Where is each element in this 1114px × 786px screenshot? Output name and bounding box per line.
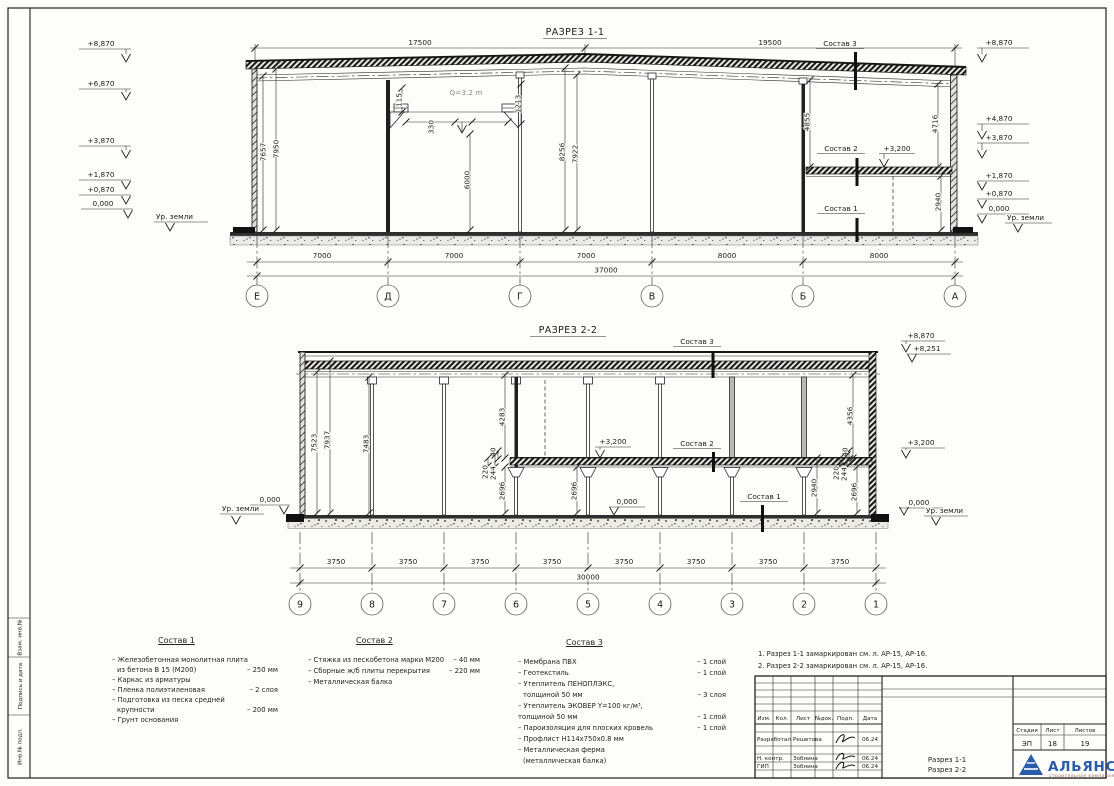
svg-text:330: 330 (427, 120, 436, 134)
svg-text:7000: 7000 (577, 251, 596, 260)
section-2-2-right-elevations: +8,870 +8,251 +3,200 0,000 Ур. земли (899, 331, 968, 525)
svg-text:3750: 3750 (831, 557, 850, 566)
svg-text:5: 5 (585, 600, 591, 611)
svg-text:Ур. земли: Ур. земли (156, 212, 193, 221)
legend-sostav-1: Состав 1 – Железобетонная монолитная пли… (112, 636, 278, 725)
svg-text:+3,870: +3,870 (87, 136, 114, 145)
legend-row: (металлическая балка) (518, 756, 726, 767)
stage-header: Стадия (1016, 728, 1037, 734)
svg-text:3750: 3750 (543, 557, 562, 566)
svg-text:7937: 7937 (323, 430, 332, 449)
legend-row: – Железобетонная монолитная плита (112, 655, 278, 665)
note-line: 2. Разрез 2-2 замаркирован см. л. АР-15,… (758, 661, 927, 673)
tb-name: Решетова (793, 737, 822, 743)
legend-row: – Металлическая балка (308, 677, 480, 688)
svg-text:+1,870: +1,870 (985, 171, 1012, 180)
tb-header: Кол. (776, 716, 789, 722)
doc-title-line2: Разрез 2-2 (928, 766, 966, 774)
legend-row: – Пленка полиэтиленовая– 2 слоя (112, 685, 278, 695)
svg-text:0,000: 0,000 (989, 204, 1010, 213)
svg-text:7523: 7523 (310, 433, 319, 452)
note-line: 1. Разрез 1-1 замаркирован см. л. АР-15,… (758, 649, 927, 661)
callout-sostav2: Состав 2 (680, 439, 714, 448)
side-strip-label: Взам. инв.№ (18, 619, 24, 655)
svg-text:37000: 37000 (594, 266, 618, 275)
svg-text:3: 3 (729, 600, 735, 611)
svg-text:Б: Б (800, 292, 807, 303)
section-1-1-left-elevations: +8,870 +6,870 +3,870 +1,870 +0,870 0,000… (79, 39, 208, 231)
svg-text:Ур. земли: Ур. земли (222, 504, 259, 513)
tb-role: ГИП (757, 764, 769, 770)
side-strip-label: Инв.№ подл. (18, 728, 24, 765)
svg-text:9: 9 (297, 600, 303, 611)
svg-text:4: 4 (657, 600, 663, 611)
svg-text:3750: 3750 (615, 557, 634, 566)
legend-title: Состав 1 (158, 636, 195, 646)
callout-sostav1: Состав 1 (747, 492, 781, 501)
legend-sostav-2: Состав 2 – Стяжка из пескобетона марки М… (308, 636, 480, 688)
notes: 1. Разрез 1-1 замаркирован см. л. АР-15,… (758, 649, 927, 672)
svg-text:+6,870: +6,870 (87, 79, 114, 88)
legend-row: толщиной 50 мм– 1 слой (518, 712, 726, 723)
sheet-number: 18 (1048, 740, 1057, 748)
legend-row: – Сборные ж/б плиты перекрытия– 220 мм (308, 666, 480, 677)
legend-row: – Мембрана ПВХ– 1 слой (518, 657, 726, 668)
legend-row: крупности– 200 мм (112, 705, 278, 715)
tb-date: 06.24 (862, 737, 878, 743)
tb-header: Дата (863, 716, 877, 722)
svg-text:244: 244 (840, 467, 849, 481)
svg-text:7000: 7000 (313, 251, 332, 260)
tb-name: Зобнина (793, 756, 818, 762)
svg-text:+8,870: +8,870 (985, 38, 1012, 47)
svg-text:4356: 4356 (846, 406, 855, 425)
section-1-1-bottom-dims: 7000 7000 7000 8000 8000 37000 Е Д Г В Б… (246, 236, 966, 307)
stage-value: ЭП (1022, 740, 1032, 748)
svg-text:3750: 3750 (687, 557, 706, 566)
legend-row: – Утеплитель ЭКОВЕР Y=100 кг/м³, (518, 701, 726, 712)
svg-text:2940: 2940 (810, 478, 819, 497)
svg-text:7000: 7000 (445, 251, 464, 260)
svg-text:30000: 30000 (576, 573, 600, 582)
svg-text:7922: 7922 (571, 145, 580, 164)
elevation-0-mid: 0,000 (617, 497, 638, 506)
svg-text:+0,870: +0,870 (985, 189, 1012, 198)
svg-text:4283: 4283 (498, 407, 507, 426)
svg-text:Г: Г (517, 292, 523, 303)
svg-text:6: 6 (513, 600, 519, 611)
svg-text:2696: 2696 (850, 482, 859, 501)
tb-header: №док. (815, 716, 833, 722)
callout-sostav3: Состав 3 (823, 39, 857, 48)
svg-text:1: 1 (873, 600, 879, 611)
logo-subtitle: строительная компания (1049, 774, 1114, 779)
side-strip-label: Подпись и дата (18, 663, 24, 709)
dim: 17500 (408, 38, 432, 47)
section-2-2-title: РАЗРЕЗ 2-2 (539, 325, 598, 336)
svg-text:1213: 1213 (514, 94, 523, 113)
svg-text:8: 8 (369, 600, 375, 611)
svg-text:7483: 7483 (362, 434, 371, 453)
section-2-2-drawing: РАЗРЕЗ 2-2 Состав 3 Состав 2 Состав 1 +3… (220, 325, 968, 615)
legend-row: – Стяжка из пескобетона марки М200– 40 м… (308, 655, 480, 666)
stage-header: Лист (1045, 728, 1060, 734)
svg-text:+0,870: +0,870 (87, 185, 114, 194)
legend-title: Состав 2 (356, 636, 393, 646)
svg-text:Ур. земли: Ур. земли (926, 506, 963, 515)
legend-title: Состав 3 (566, 638, 603, 648)
svg-text:7657: 7657 (259, 142, 268, 161)
svg-text:2696: 2696 (570, 481, 579, 500)
svg-text:3750: 3750 (399, 557, 418, 566)
svg-text:+3,200: +3,200 (907, 438, 934, 447)
svg-text:244: 244 (489, 466, 498, 480)
svg-text:+4,870: +4,870 (985, 114, 1012, 123)
svg-text:7: 7 (441, 600, 447, 611)
svg-text:40: 40 (489, 447, 498, 457)
svg-text:Е: Е (254, 292, 260, 303)
legend-sostav-3: Состав 3 – Мембрана ПВХ– 1 слой – Геотек… (518, 638, 726, 767)
section-2-2-left-elevations: 0,000 Ур. земли (220, 495, 290, 524)
svg-text:А: А (952, 292, 959, 303)
section-1-1-right-elevations: +8,870 +4,870 +3,870 +1,870 +0,870 0,000… (977, 38, 1052, 232)
svg-text:0,000: 0,000 (93, 199, 114, 208)
dim: 19500 (758, 38, 782, 47)
doc-title-line1: Разрез 1-1 (928, 756, 966, 764)
svg-text:4716: 4716 (931, 114, 940, 133)
callout-sostav1: Состав 1 (824, 204, 858, 213)
logo-text: АЛЬЯНС (1048, 759, 1114, 775)
stage-header: Листов (1075, 728, 1096, 734)
sheet-count: 19 (1081, 740, 1090, 748)
svg-text:2696: 2696 (498, 481, 507, 500)
legend-row: – Пароизоляция для плоских кровель– 1 сл… (518, 723, 726, 734)
svg-text:В: В (649, 292, 656, 303)
svg-text:Д: Д (384, 292, 391, 303)
svg-text:+3,870: +3,870 (985, 133, 1012, 142)
svg-text:Q=3.2 m: Q=3.2 m (450, 88, 483, 97)
tb-role: Н. контр. (757, 756, 784, 762)
legend-row: – Утеплитель ПЕНОПЛЭКС, (518, 679, 726, 690)
tb-role: Разработал (757, 737, 791, 743)
tb-header: Лист (796, 716, 811, 722)
callout-sostav2: Состав 2 (824, 144, 858, 153)
title-block: Изм. Кол. Лист №док. Подп. Дата Разработ… (755, 676, 1114, 779)
legend-row: – Профлист Н114х750х0.8 мм (518, 734, 726, 745)
legend-row: толщиной 50 мм– 3 слоя (518, 690, 726, 701)
tb-header: Изм. (757, 716, 770, 722)
legend-row: – Металлическая ферма (518, 745, 726, 756)
section-2-2-bottom-dims: 3750 3750 3750 3750 3750 3750 3750 3750 … (289, 532, 887, 615)
tb-header: Подп. (837, 716, 854, 722)
svg-text:4855: 4855 (803, 113, 812, 132)
elevation-3200-mid: +3,200 (599, 437, 626, 446)
svg-text:6000: 6000 (463, 170, 472, 189)
callout-sostav3: Состав 3 (680, 337, 714, 346)
section-1-1-drawing: РАЗРЕЗ 1-1 17500 19500 Состав 3 Состав 2… (79, 27, 1052, 307)
svg-text:2: 2 (801, 600, 807, 611)
svg-text:3750: 3750 (327, 557, 346, 566)
svg-text:+8,870: +8,870 (907, 331, 934, 340)
svg-text:8000: 8000 (718, 251, 737, 260)
legend-row: – Геотекстиль– 1 слой (518, 668, 726, 679)
svg-text:2940: 2940 (934, 192, 943, 211)
svg-text:0,000: 0,000 (260, 495, 281, 504)
svg-text:7950: 7950 (272, 139, 281, 158)
svg-text:Ур. земли: Ур. земли (1007, 213, 1044, 222)
section-1-1-title: РАЗРЕЗ 1-1 (546, 27, 605, 38)
elevation-3200: +3,200 (883, 144, 910, 153)
svg-text:8000: 8000 (870, 251, 889, 260)
tb-date: 06.24 (862, 764, 878, 770)
svg-text:3750: 3750 (471, 557, 490, 566)
drawing-sheet: Взам. инв.№ Подпись и дата Инв.№ подл. Р… (0, 0, 1114, 786)
svg-text:115: 115 (395, 93, 404, 107)
legend-row: – Грунт основания (112, 715, 278, 725)
legend-row: из бетона В 15 (М200)– 250 мм (112, 665, 278, 675)
svg-text:+8,251: +8,251 (913, 344, 940, 353)
tb-name: Зобнина (793, 764, 818, 770)
legend-row: – Подготовка из песка средней (112, 695, 278, 705)
svg-text:8256: 8256 (558, 142, 567, 161)
svg-text:+1,870: +1,870 (87, 170, 114, 179)
legend-row: – Каркас из арматуры (112, 675, 278, 685)
svg-text:3750: 3750 (759, 557, 778, 566)
svg-text:+8,870: +8,870 (87, 39, 114, 48)
svg-text:40: 40 (841, 447, 850, 457)
tb-date: 06.24 (862, 756, 878, 762)
